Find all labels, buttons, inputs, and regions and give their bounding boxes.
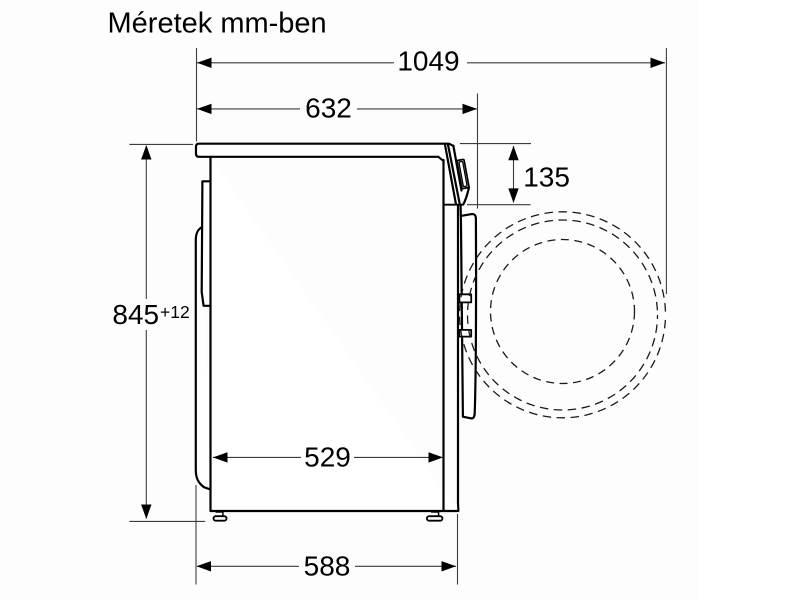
svg-text:135: 135 — [523, 162, 570, 193]
svg-text:529: 529 — [304, 441, 351, 472]
svg-text:+12: +12 — [160, 302, 190, 322]
svg-text:588: 588 — [304, 551, 351, 582]
svg-text:1049: 1049 — [397, 46, 459, 77]
svg-text:845: 845 — [112, 299, 159, 330]
svg-text:632: 632 — [305, 93, 352, 124]
svg-text:Méretek mm-ben: Méretek mm-ben — [108, 7, 327, 39]
